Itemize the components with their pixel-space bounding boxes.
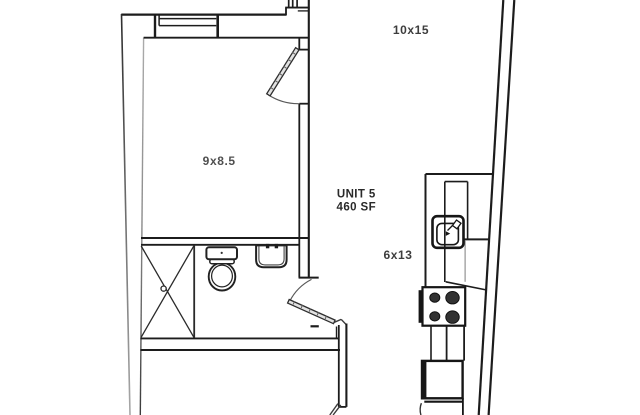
svg-text:460 SF: 460 SF bbox=[337, 202, 376, 214]
svg-text:UNIT 5: UNIT 5 bbox=[337, 189, 376, 201]
svg-text:10x15: 10x15 bbox=[393, 23, 429, 37]
svg-text:9x8.5: 9x8.5 bbox=[203, 154, 236, 168]
svg-text:6x13: 6x13 bbox=[383, 248, 412, 262]
